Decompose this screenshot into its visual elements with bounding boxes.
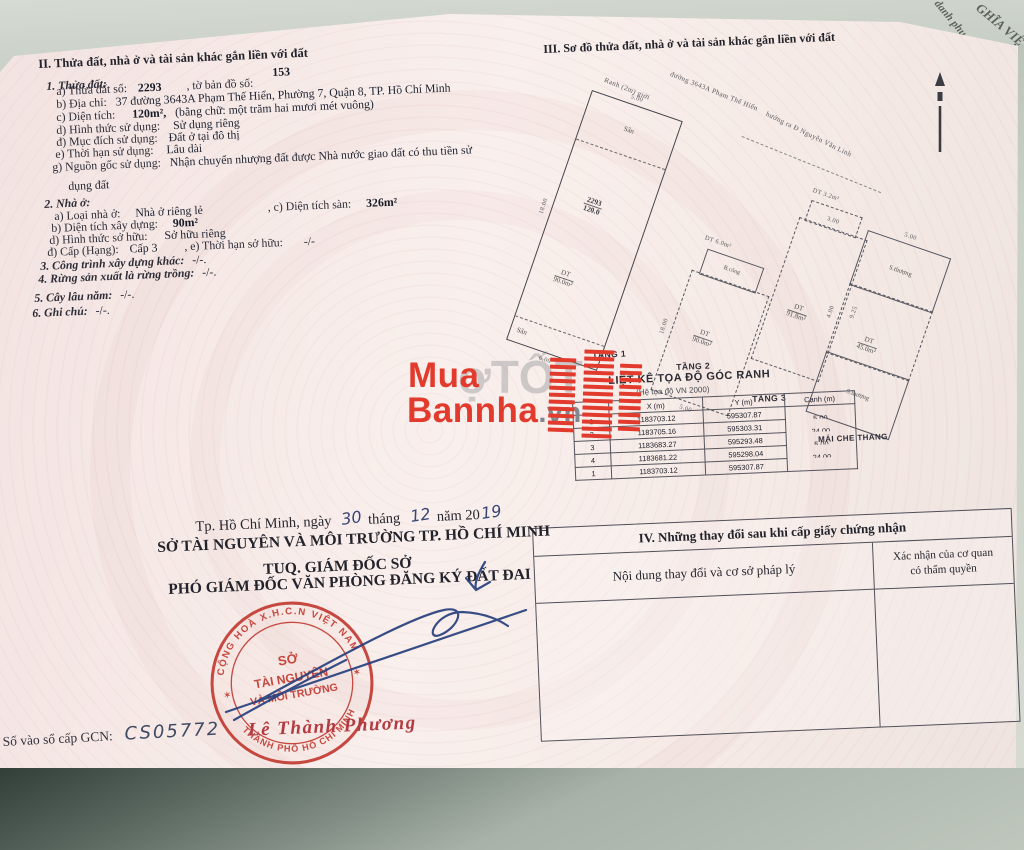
balcony-label: B.công [723,265,741,276]
brand-building-icon [581,350,614,439]
yard-label: Sân [623,125,636,136]
section4-divider [874,589,881,727]
north-arrow-icon [928,72,952,158]
yard-label: Sân [516,326,529,337]
cell-canh [787,456,857,472]
floor-area-value: 326m² [366,195,398,210]
handwritten-day: 30 [340,507,363,529]
month-label: tháng [368,510,401,527]
brand-line1: Mua [408,356,480,396]
section4-table: IV. Những thay đổi sau khi cấp giấy chứn… [532,508,1021,742]
land-certificate-photo: { "colors":{"brand_red":"#e23b2e","seal_… [0,0,1024,768]
item5-value: -/-. [120,287,135,302]
item4-value: -/-. [202,265,217,280]
area-fraction: DT 90.0m² [552,267,576,289]
cell-y: 595307.87 [705,459,787,475]
section4-col2: Xác nhận của cơ quan có thẩm quyền [873,537,1014,589]
item6-label: 6. Ghi chú: [32,304,88,320]
handwritten-month: 12 [408,504,431,526]
terrace-label: S.thượng [888,264,913,278]
year-label: năm 20 [436,507,480,525]
map-sheet-number: 153 [272,64,290,80]
area-fraction: DT 91.8m² [785,302,809,324]
handwritten-year: 19 [479,501,502,523]
brand-building-icon [618,364,642,432]
brand-name: Bannha [407,391,538,430]
origin-value-cont: dụng đất [68,177,110,194]
area-fraction: DT 90.0m² [691,327,715,349]
own-term-label: , e) Thời hạn sở hữu: [184,235,283,253]
coords-table: X (m) Y (m) Cạnh (m) 1 1183703.12 595307… [572,390,858,481]
gcn-label: Số vào sổ cấp GCN: [2,728,113,749]
brand-building-icon [548,358,577,433]
cell-n: 1 [575,466,612,480]
area-fraction: DT 45.0m² [855,334,879,356]
section4-col2-line2: có thẩm quyền [910,561,977,578]
item6-value: -/-. [95,303,110,318]
parcel-fraction: 2293 120.0 [581,195,605,218]
dim-label: 3.00 [826,215,840,226]
floor-area-label: , c) Diện tích sàn: [267,197,351,214]
own-term-value: -/- [304,234,316,248]
